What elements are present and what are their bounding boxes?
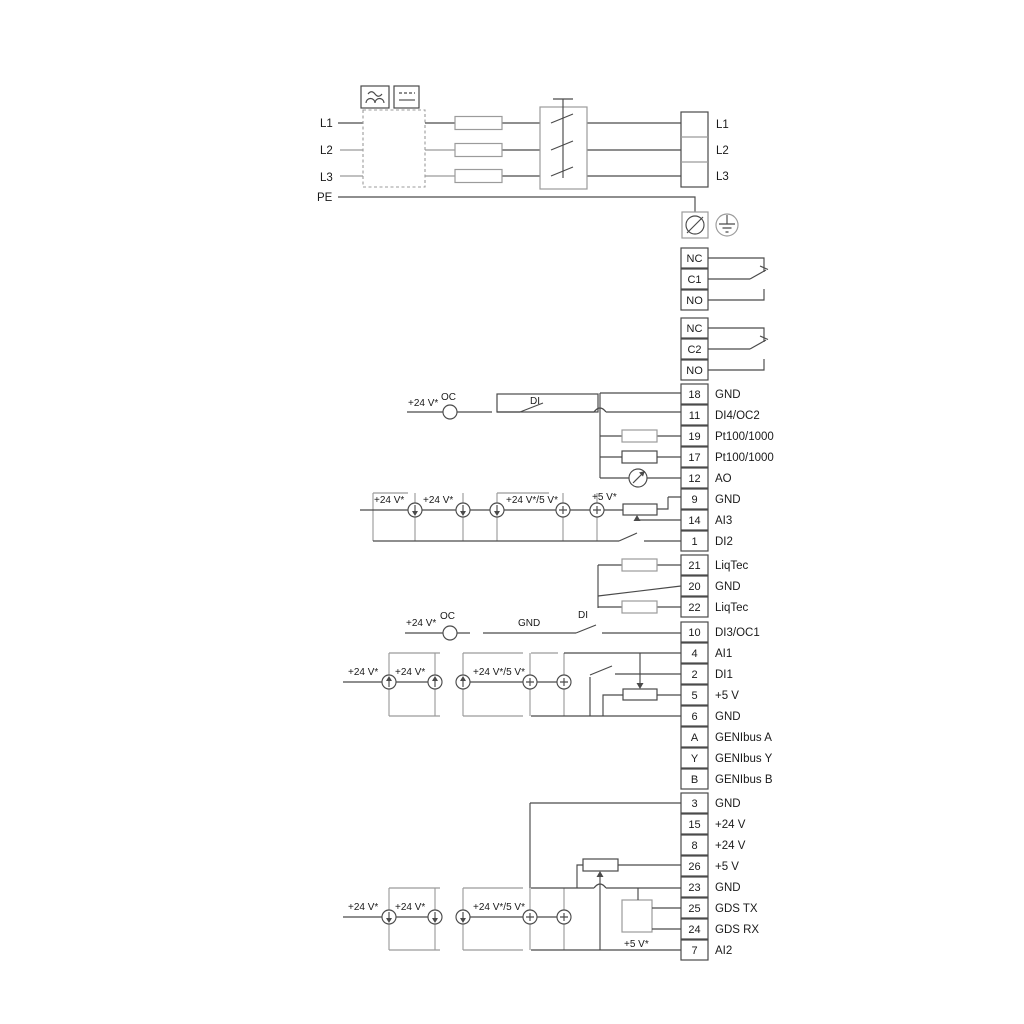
wiring-diagram-page: L1 L2 L3 PE	[0, 0, 1024, 1024]
ac-symbol-icon	[361, 86, 389, 108]
terminal-label: LiqTec	[715, 560, 748, 572]
terminal-label: AI2	[715, 945, 732, 957]
terminal-label: DI3/OC1	[715, 627, 760, 639]
terminal-label: GENIbus B	[715, 774, 773, 786]
terminal-id: 24	[688, 924, 700, 936]
terminal-id: 14	[688, 515, 700, 527]
terminal-id: 11	[689, 410, 700, 422]
terminal-id: A	[691, 732, 699, 744]
terminal-label: GENIbus Y	[715, 753, 773, 765]
voltage-source-icon	[557, 910, 571, 924]
wire-gnd23	[531, 884, 681, 888]
open-collector-icon	[443, 405, 457, 419]
terminal-id: 18	[688, 389, 700, 401]
fuse-l2	[455, 144, 502, 157]
power-in-label-l2: L2	[320, 145, 333, 157]
current-source-icon	[428, 910, 442, 924]
terminal-id: 23	[688, 882, 700, 894]
pt100-sensor-1	[600, 430, 681, 442]
terminal-id: NC	[687, 253, 703, 265]
v24-label: +24 V*	[395, 667, 425, 678]
terminal-id: 25	[688, 903, 700, 915]
terminal-label: Pt100/1000	[715, 431, 774, 443]
terminal-id: NO	[686, 295, 703, 307]
power-section: L1 L2 L3 PE	[317, 86, 738, 238]
terminal-id: 10	[688, 627, 700, 639]
terminal-label: DI1	[715, 669, 733, 681]
relay2-contact	[708, 328, 768, 370]
terminal-id: 17	[688, 452, 700, 464]
voltage-source-icon	[523, 910, 537, 924]
terminal-label: GDS TX	[715, 903, 758, 915]
terminal-id: NC	[687, 323, 703, 335]
terminal-id: 9	[691, 494, 697, 506]
power-in-label-pe: PE	[317, 192, 333, 204]
terminal-id: 2	[691, 669, 697, 681]
di-option-box: DI	[497, 394, 598, 412]
terminal-strip: NCC1NONCC2NO18GND11DI4/OC219Pt100/100017…	[681, 248, 774, 960]
v24-label: +24 V*	[395, 902, 425, 913]
v24-5v-label: +24 V*/5 V*	[506, 495, 558, 506]
voltage-source-icon	[556, 503, 570, 517]
terminal-id: 1	[691, 536, 697, 548]
v24-label: +24 V*	[408, 398, 438, 409]
terminal-id: 21	[688, 560, 700, 572]
voltage-source-icon	[590, 503, 604, 517]
v24-label: +24 V*	[374, 495, 404, 506]
v24-label: +24 V*	[348, 667, 378, 678]
ai3-source-row: +24 V* +24 V* +24 V*/5 V* +5 V*	[360, 492, 681, 541]
liqtec-wiring	[598, 559, 681, 613]
terminal-id: 12	[688, 473, 700, 485]
terminal-label: +5 V	[715, 690, 739, 702]
emc-filter-box	[363, 110, 425, 187]
terminal-id: 5	[691, 690, 697, 702]
terminal-id: 6	[691, 711, 697, 723]
terminal-id: B	[691, 774, 698, 786]
terminal-id: 22	[688, 602, 700, 614]
terminal-label: +24 V	[715, 840, 746, 852]
wire-di2	[373, 533, 681, 541]
io1-wiring: +24 V* OC DI	[407, 392, 681, 487]
earth-ground-icon	[716, 214, 738, 236]
power-in-label-l3: L3	[320, 172, 333, 184]
terminal-label: AI3	[715, 515, 732, 527]
current-source-icon	[490, 503, 504, 517]
terminal-id: 8	[691, 840, 697, 852]
terminal-label: GND	[715, 711, 741, 723]
terminal-id: Y	[691, 753, 699, 765]
current-source-icon	[456, 503, 470, 517]
terminal-label: GDS RX	[715, 924, 759, 936]
terminal-label: AO	[715, 473, 732, 485]
wire-liqtec-gnd	[598, 586, 681, 596]
liqtec-sensor-2	[598, 601, 681, 613]
pt100-sensor-2	[600, 451, 681, 463]
terminal-id: NO	[686, 365, 703, 377]
gds-sensor-box: +5 V*	[622, 888, 681, 950]
potentiometer-ai1	[603, 653, 681, 716]
relay1-contact	[708, 258, 768, 300]
terminal-label: GND	[715, 882, 741, 894]
v24-5v-label: +24 V*/5 V*	[473, 902, 525, 913]
current-source-icon	[428, 675, 442, 689]
voltage-source-icon	[523, 675, 537, 689]
terminal-label: GND	[715, 494, 741, 506]
v5-label: +5 V*	[624, 939, 649, 950]
pe-screw-terminal	[682, 212, 708, 238]
terminal-id: C1	[687, 274, 701, 286]
fuse-l1	[455, 117, 502, 130]
power-terminal-block: L1 L2 L3	[681, 112, 729, 187]
power-out-label-l2: L2	[716, 145, 729, 157]
terminal-label: GND	[715, 389, 741, 401]
terminal-label: GND	[715, 798, 741, 810]
di-label: DI	[578, 610, 588, 621]
oc-label: OC	[441, 392, 456, 403]
voltage-source-icon	[557, 675, 571, 689]
dc-symbol-icon	[394, 86, 419, 108]
terminal-label: Pt100/1000	[715, 452, 774, 464]
current-source-icon	[382, 910, 396, 924]
terminal-id: 19	[688, 431, 700, 443]
wiring-diagram: L1 L2 L3 PE	[0, 0, 1024, 1024]
power-out-label-l3: L3	[716, 171, 729, 183]
power-out-label-l1: L1	[716, 119, 729, 131]
v24-label: +24 V*	[423, 495, 453, 506]
fuse-l3	[455, 170, 502, 183]
current-source-icon	[382, 675, 396, 689]
liqtec-sensor-1	[598, 559, 681, 571]
v5-label: +5 V*	[592, 492, 617, 503]
current-source-icon	[456, 910, 470, 924]
terminal-label: +5 V	[715, 861, 739, 873]
terminal-id: 20	[688, 581, 700, 593]
ai2-source-row: +24 V* +24 V* +24 V*/5 V* +5 V*	[343, 803, 681, 950]
wire-pe	[338, 197, 695, 212]
terminal-label: LiqTec	[715, 602, 748, 614]
ai1-source-row: +24 V* +24 V* +24 V*/5 V*	[343, 653, 681, 716]
terminal-label: DI4/OC2	[715, 410, 760, 422]
terminal-id: 26	[688, 861, 700, 873]
di3-row: +24 V* OC GND DI	[405, 610, 681, 640]
terminal-id: C2	[687, 344, 701, 356]
v24-label: +24 V*	[348, 902, 378, 913]
oc-label: OC	[440, 611, 455, 622]
power-in-label-l1: L1	[320, 118, 333, 130]
terminal-id: 7	[691, 945, 697, 957]
main-switch	[540, 99, 587, 189]
potentiometer-ai3	[623, 497, 681, 521]
terminal-label: AI1	[715, 648, 732, 660]
terminal-id: 15	[688, 819, 700, 831]
current-source-icon	[408, 503, 422, 517]
open-collector-icon	[443, 626, 457, 640]
terminal-label: DI2	[715, 536, 733, 548]
terminal-label: GENIbus A	[715, 732, 772, 744]
wire-gnd3	[530, 803, 681, 888]
terminal-label: +24 V	[715, 819, 746, 831]
analog-output-meter-icon	[600, 469, 681, 487]
terminal-id: 4	[691, 648, 697, 660]
v24-label: +24 V*	[406, 618, 436, 629]
v24-5v-label: +24 V*/5 V*	[473, 667, 525, 678]
terminal-label: GND	[715, 581, 741, 593]
gnd-label: GND	[518, 618, 540, 629]
current-source-icon	[456, 675, 470, 689]
terminal-id: 3	[691, 798, 697, 810]
